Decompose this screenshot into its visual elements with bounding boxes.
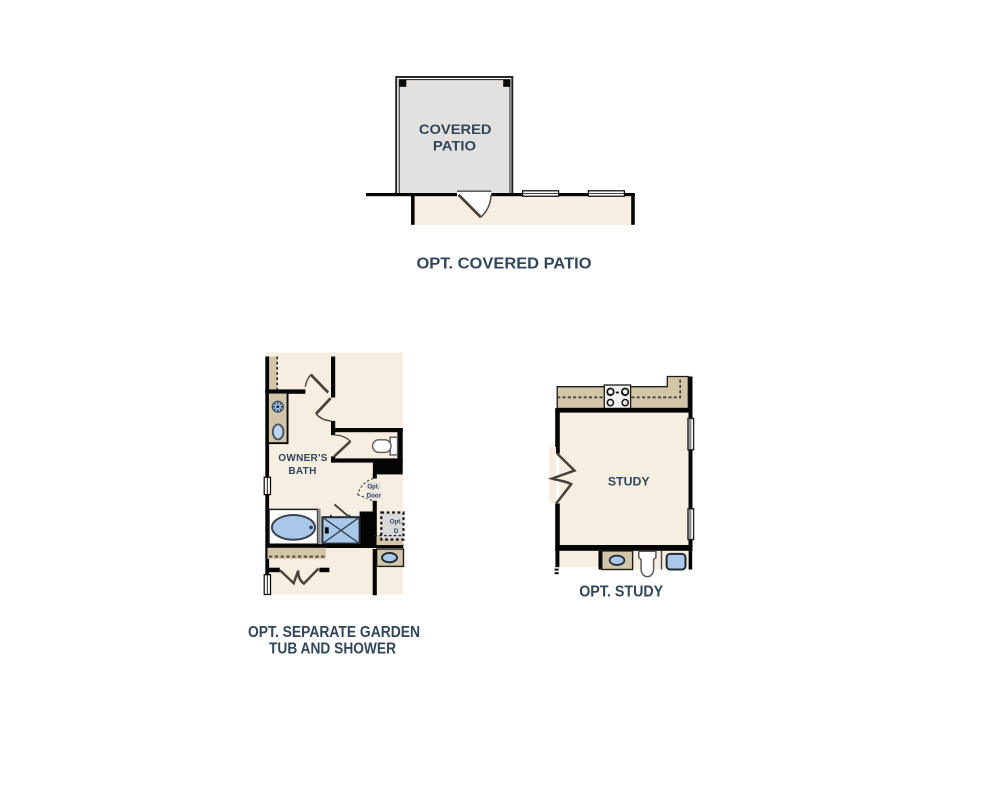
svg-text:STUDY: STUDY — [608, 474, 650, 488]
svg-text:Door: Door — [367, 493, 382, 499]
svg-text:OPT. STUDY: OPT. STUDY — [579, 584, 663, 601]
svg-text:PATIO: PATIO — [433, 137, 476, 153]
svg-text:OWNER'S: OWNER'S — [278, 453, 328, 464]
svg-text:TUB AND SHOWER: TUB AND SHOWER — [269, 640, 396, 657]
svg-text:OPT. SEPARATE GARDEN: OPT. SEPARATE GARDEN — [248, 624, 420, 641]
svg-text:COVERED: COVERED — [419, 121, 492, 137]
svg-text:Opt.: Opt. — [390, 519, 403, 526]
svg-text:D: D — [394, 528, 399, 535]
svg-text:BATH: BATH — [288, 466, 316, 477]
svg-text:OPT. COVERED PATIO: OPT. COVERED PATIO — [417, 255, 592, 272]
svg-text:Opt.: Opt. — [367, 484, 379, 490]
